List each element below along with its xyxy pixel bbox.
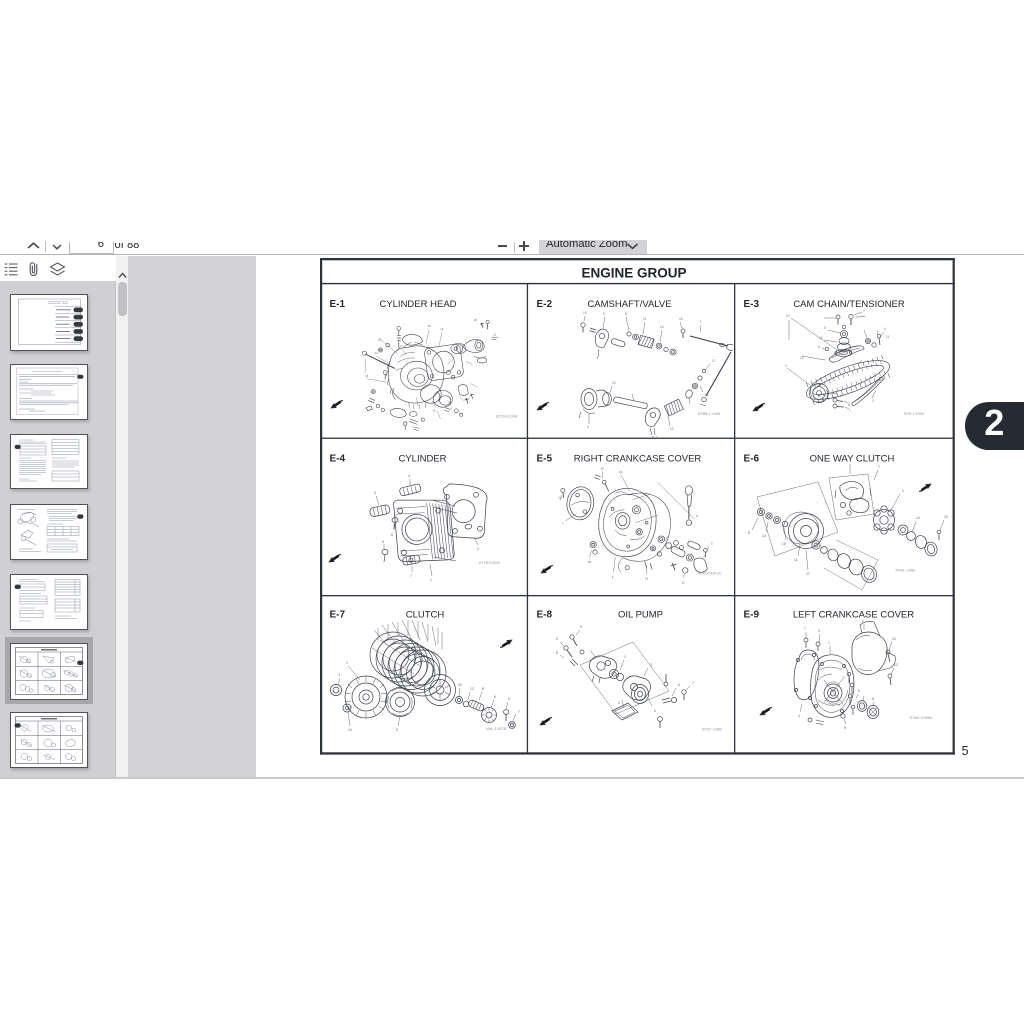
svg-text:2: 2 [618, 701, 620, 705]
svg-text:CYLINDER: CYLINDER [398, 453, 446, 464]
svg-text:3: 3 [872, 399, 874, 403]
svg-text:5: 5 [824, 326, 826, 330]
svg-text:4: 4 [654, 709, 656, 713]
svg-text:OIL PUMP: OIL PUMP [618, 609, 663, 620]
svg-text:11: 11 [682, 580, 685, 584]
svg-text:25: 25 [428, 324, 432, 328]
svg-text:8: 8 [858, 689, 860, 693]
svg-text:3: 3 [374, 491, 376, 495]
svg-text:E-8: E-8 [537, 609, 553, 620]
svg-text:12: 12 [440, 327, 444, 331]
svg-text:KZ1N·E100A: KZ1N·E100A [496, 415, 518, 419]
svg-text:1: 1 [624, 655, 626, 659]
svg-text:9: 9 [580, 625, 582, 629]
svg-text:12: 12 [670, 427, 674, 431]
svg-text:11: 11 [886, 335, 890, 339]
svg-text:1: 1 [612, 575, 614, 579]
svg-text:8: 8 [848, 403, 850, 407]
svg-text:1: 1 [828, 641, 830, 645]
svg-text:8: 8 [482, 687, 484, 691]
svg-text:10: 10 [786, 314, 790, 318]
svg-text:12: 12 [800, 356, 804, 360]
svg-text:CAM CHAIN/TENSIONER: CAM CHAIN/TENSIONER [793, 299, 905, 310]
svg-text:4: 4 [798, 714, 800, 718]
svg-text:8: 8 [556, 651, 558, 655]
svg-text:9: 9 [696, 514, 698, 518]
svg-text:7: 7 [804, 627, 806, 631]
svg-text:10: 10 [458, 683, 462, 687]
svg-text:LEFT CRANKCASE COVER: LEFT CRANKCASE COVER [793, 609, 914, 620]
svg-text:3: 3 [650, 663, 652, 667]
svg-text:7: 7 [562, 521, 564, 525]
svg-text:5: 5 [382, 540, 384, 544]
svg-text:6: 6 [742, 331, 744, 335]
svg-text:RIGHT CRANKCASE COVER: RIGHT CRANKCASE COVER [574, 453, 702, 464]
svg-text:16: 16 [705, 393, 709, 397]
svg-text:2: 2 [785, 364, 787, 368]
svg-text:1: 1 [840, 394, 842, 398]
svg-text:6: 6 [494, 695, 496, 699]
svg-text:1: 1 [700, 320, 702, 324]
svg-text:14: 14 [660, 325, 664, 329]
svg-text:18: 18 [588, 560, 592, 564]
svg-text:10: 10 [612, 381, 616, 385]
svg-text:E-9: E-9 [744, 609, 760, 620]
svg-text:2: 2 [477, 547, 479, 551]
svg-text:15: 15 [782, 542, 786, 546]
svg-text:4: 4 [884, 327, 886, 331]
svg-text:7: 7 [518, 710, 520, 714]
svg-text:RT0Y· E960: RT0Y· E960 [702, 728, 722, 732]
svg-text:8: 8 [625, 312, 627, 316]
svg-text:10: 10 [892, 637, 896, 641]
svg-text:13: 13 [916, 516, 920, 520]
svg-text:18: 18 [679, 317, 683, 321]
svg-text:20: 20 [474, 318, 478, 322]
svg-text:9: 9 [844, 726, 846, 730]
svg-text:1: 1 [902, 489, 904, 493]
svg-text:E-5: E-5 [537, 453, 553, 464]
svg-text:E-4: E-4 [330, 453, 346, 464]
svg-text:11: 11 [493, 333, 496, 337]
svg-text:14: 14 [348, 728, 352, 732]
svg-text:13: 13 [819, 336, 823, 340]
svg-text:7: 7 [692, 681, 694, 685]
svg-text:E-6: E-6 [744, 453, 760, 464]
svg-text:17: 17 [806, 572, 810, 576]
svg-text:10: 10 [944, 515, 948, 519]
svg-text:13: 13 [583, 311, 587, 315]
svg-text:6: 6 [678, 683, 680, 687]
svg-text:16: 16 [365, 374, 369, 378]
svg-text:4: 4 [408, 474, 410, 478]
svg-text:E-3: E-3 [744, 299, 760, 310]
svg-text:ONE WAY CLUTCH: ONE WAY CLUTCH [810, 453, 895, 464]
svg-text:CLUTCH: CLUTCH [406, 609, 445, 620]
svg-text:3: 3 [338, 673, 340, 677]
svg-text:7: 7 [878, 465, 880, 469]
svg-text:11: 11 [794, 558, 798, 562]
svg-text:14: 14 [375, 351, 379, 355]
svg-text:6: 6 [748, 531, 750, 535]
svg-text:12: 12 [894, 663, 898, 667]
svg-text:13: 13 [645, 577, 649, 581]
svg-text:KT7N·E400V: KT7N·E400V [479, 561, 501, 565]
svg-text:9: 9 [603, 312, 605, 316]
svg-text:5: 5 [872, 697, 874, 701]
svg-text:NUL·1 00TB: NUL·1 00TB [486, 727, 507, 731]
svg-text:1: 1 [346, 661, 348, 665]
svg-text:11: 11 [643, 317, 647, 321]
svg-text:9: 9 [508, 697, 510, 701]
svg-text:15: 15 [432, 409, 436, 413]
svg-text:16: 16 [601, 466, 605, 470]
svg-text:CAMSHAFT/VALVE: CAMSHAFT/VALVE [587, 299, 671, 310]
svg-text:KPH·1 E300: KPH·1 E300 [904, 412, 924, 416]
svg-text:10: 10 [619, 470, 623, 474]
svg-text:5: 5 [396, 728, 398, 732]
svg-text:17: 17 [712, 359, 716, 363]
svg-text:E-1: E-1 [330, 299, 346, 310]
svg-text:7: 7 [849, 409, 851, 413]
svg-text:TN3H· L0N0: TN3H· L0N0 [895, 569, 915, 573]
svg-text:6: 6 [818, 345, 820, 349]
svg-text:2: 2 [438, 667, 440, 671]
svg-text:3: 3 [818, 629, 820, 633]
svg-text:E7M0−E30Ns: E7M0−E30Ns [910, 716, 932, 720]
svg-text:14: 14 [558, 496, 562, 500]
svg-text:EZ8N·1 Y00N: EZ8N·1 Y00N [698, 412, 721, 416]
svg-text:6: 6 [391, 533, 393, 537]
svg-text:1: 1 [430, 578, 432, 582]
svg-text:4: 4 [587, 425, 589, 429]
svg-text:ENGINE GROUP: ENGINE GROUP [582, 266, 687, 282]
svg-text:14: 14 [762, 534, 766, 538]
svg-text:E-7: E-7 [330, 609, 346, 620]
svg-text:7: 7 [410, 574, 412, 578]
svg-text:5: 5 [711, 542, 713, 546]
svg-text:3: 3 [450, 407, 452, 411]
svg-text:CYLINDER HEAD: CYLINDER HEAD [379, 299, 456, 310]
svg-text:22: 22 [378, 337, 382, 341]
svg-text:E-2: E-2 [537, 299, 553, 310]
svg-text:5: 5 [556, 637, 558, 641]
svg-text:12: 12 [470, 687, 474, 691]
